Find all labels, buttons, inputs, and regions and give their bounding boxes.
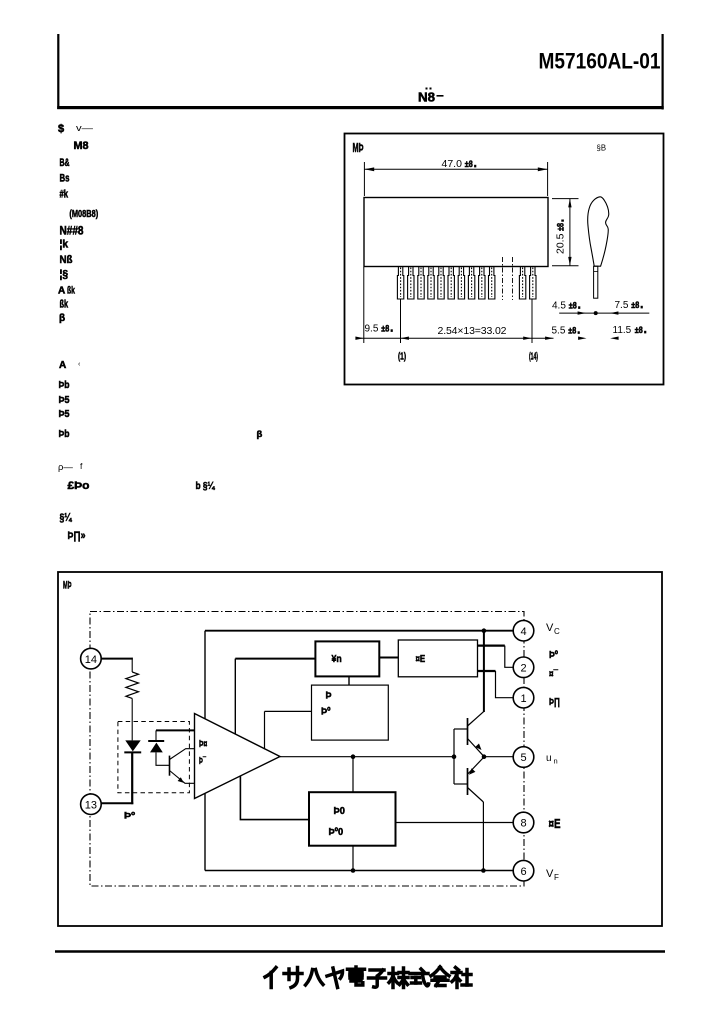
svg-text:v—: v— [76,123,93,133]
svg-text:6: 6 [520,866,526,878]
svg-text:¤E: ¤E [416,653,426,665]
svg-text:B&: B& [60,157,70,169]
svg-text:¦k: ¦k [60,239,69,251]
svg-text:9.5: 9.5 [365,324,379,335]
svg-text:β: β [59,313,65,324]
svg-text:ßk: ßk [60,299,69,311]
svg-text:MÞ: MÞ [63,580,72,592]
svg-text:±8: ±8 [635,325,643,336]
svg-text:β: β [257,429,263,440]
svg-text:Þ0: Þ0 [334,806,346,817]
svg-text:M8: M8 [74,140,89,152]
svg-text:A: A [58,286,65,297]
svg-text:Þº: Þº [321,707,331,718]
svg-text:¤E: ¤E [549,816,561,831]
svg-text:N8: N8 [418,90,435,105]
svg-text:(M08B8): (M08B8) [69,208,98,220]
svg-text:V: V [546,622,554,634]
svg-text:(1): (1) [398,352,406,363]
svg-text:Þ∏: Þ∏ [549,697,560,708]
svg-text:Þ¯: Þ¯ [199,755,206,767]
svg-text:4.5: 4.5 [552,301,566,312]
svg-text:Bs: Bs [60,173,70,185]
svg-text:5: 5 [520,752,526,764]
svg-text:±8: ±8 [465,159,473,170]
svg-text:u: u [546,753,552,764]
svg-text:¤¯: ¤¯ [549,668,558,680]
svg-text:M57160AL-01: M57160AL-01 [539,49,661,74]
svg-text:ρ—: ρ— [58,462,73,473]
svg-text:Þº0: Þº0 [329,827,344,838]
svg-text:§B: §B [597,143,607,153]
svg-text:±8: ±8 [556,223,567,231]
svg-text:V: V [546,868,554,880]
svg-text:Þ5: Þ5 [59,408,70,420]
svg-text:F: F [554,873,559,882]
svg-text:C: C [554,627,560,636]
svg-text:20.5: 20.5 [555,233,567,254]
svg-text:b §¼: b §¼ [196,480,216,492]
svg-text:A: A [59,360,66,371]
svg-text:(14): (14) [529,352,538,363]
svg-text:¦§: ¦§ [60,269,69,281]
svg-text:Nß: Nß [60,254,73,266]
svg-text:2.54×13=33.02: 2.54×13=33.02 [438,325,507,337]
svg-text:Þº: Þº [549,650,558,661]
svg-text:7.5: 7.5 [615,300,629,311]
svg-text:$: $ [58,123,64,135]
svg-text:1: 1 [520,693,526,705]
svg-text:Þº: Þº [124,811,136,822]
svg-text:2: 2 [520,663,526,675]
svg-text:MÞ: MÞ [353,141,364,155]
svg-text:Þ¤: Þ¤ [199,739,208,750]
svg-text:Þ5: Þ5 [59,394,70,406]
svg-text:§¼: §¼ [60,512,73,524]
svg-text:8: 8 [520,818,526,830]
svg-text:±8: ±8 [381,324,389,335]
svg-text:£Þo: £Þo [68,480,90,492]
svg-text:±8: ±8 [568,326,576,337]
svg-text:±8: ±8 [569,301,577,312]
svg-text:4: 4 [520,626,526,638]
svg-text:±8: ±8 [631,300,639,311]
svg-text:#k: #k [60,189,69,201]
svg-text:14: 14 [85,654,97,666]
svg-text:Þb: Þb [59,379,70,391]
svg-text:Þ∏»: Þ∏» [68,530,86,542]
svg-text:11.5: 11.5 [613,325,632,336]
svg-text:N##8: N##8 [60,226,85,238]
svg-text:Þ: Þ [326,691,332,702]
svg-text:Þb: Þb [59,428,70,440]
svg-text:13: 13 [85,799,97,811]
svg-text:‹: ‹ [78,361,81,368]
svg-text:47.0: 47.0 [442,158,463,170]
svg-text:ßk: ßk [67,285,75,297]
svg-text:5.5: 5.5 [552,326,566,337]
svg-text:n: n [554,757,558,766]
svg-text:f: f [80,461,83,471]
svg-text:¥n: ¥n [332,653,342,665]
